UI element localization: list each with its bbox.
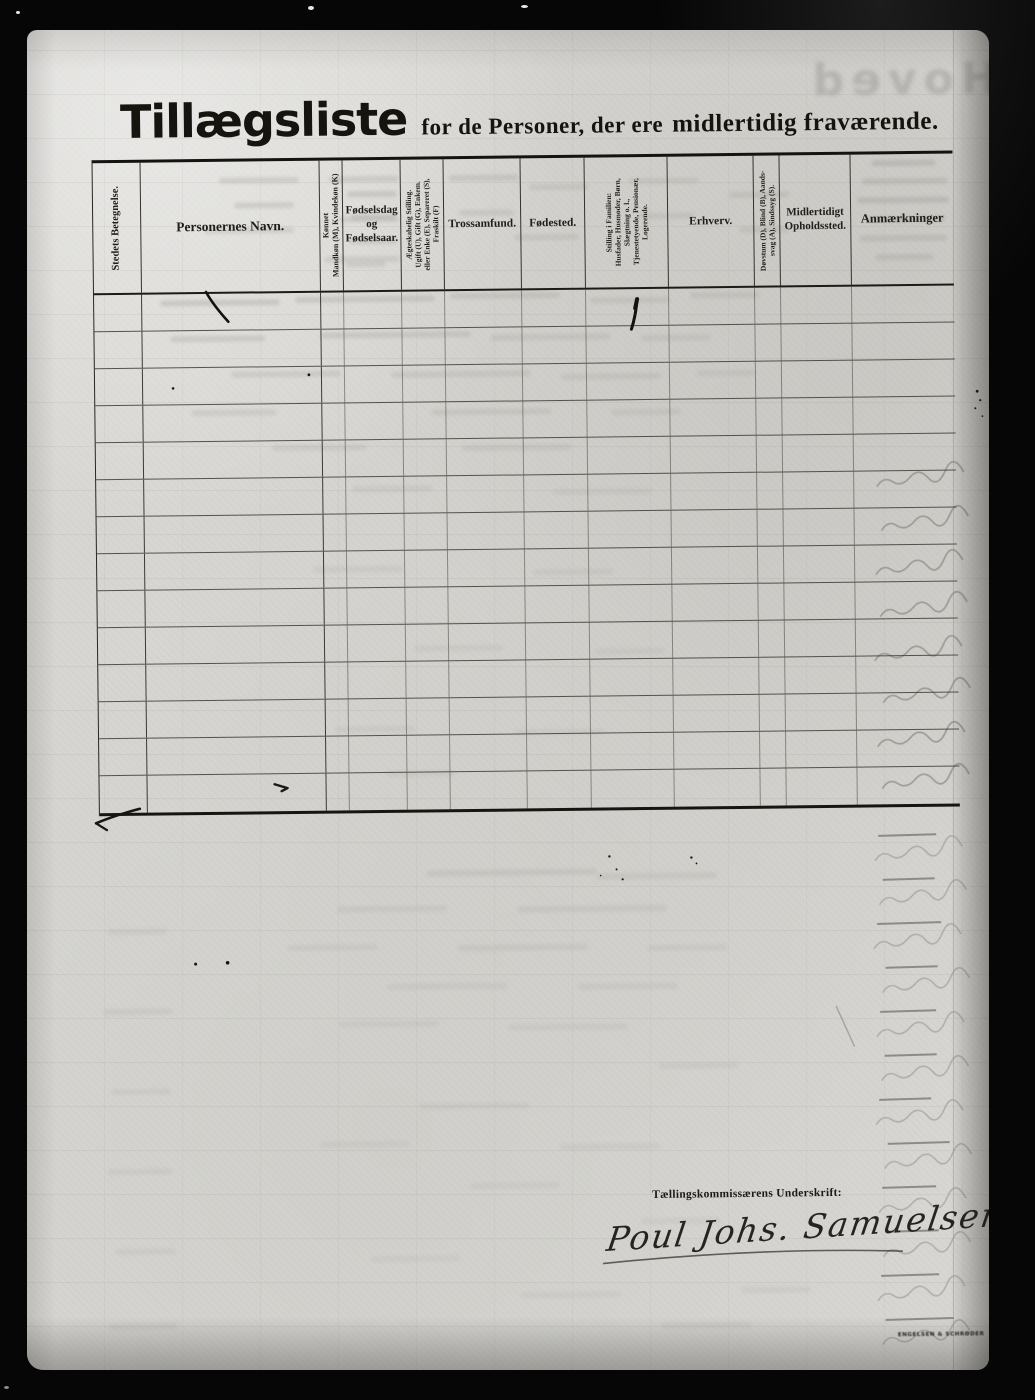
cell-fodsel (347, 588, 405, 625)
cell-sted (99, 739, 147, 776)
cell-ophold (786, 694, 857, 731)
column-header-erhverv: Erhverv. (667, 156, 754, 287)
cell-fodested (527, 771, 591, 809)
column-header-sted: Stedets Betegnelse. (93, 163, 142, 294)
cell-ophold (782, 361, 853, 398)
cell-trossamfund (447, 438, 524, 475)
column-label-dovstum: Døvstum (D), Blind (B), Aands- svag (A),… (757, 170, 776, 271)
cell-anmaerkninger (856, 655, 958, 692)
cell-fodsel (349, 699, 407, 736)
column-label-erhverv: Erhverv. (689, 214, 732, 229)
cell-sted (97, 554, 145, 591)
cell-aegteskab (403, 365, 446, 401)
cell-aegteskab (407, 772, 450, 809)
column-header-navn: Personernes Navn. (141, 161, 321, 293)
cell-kjonnet (323, 440, 346, 476)
cell-stilling (586, 289, 669, 326)
cell-kjonnet (322, 403, 345, 439)
column-label-stilling: Stilling i Familien: Husfader, Husmoder,… (603, 178, 649, 267)
cell-fodsel (344, 329, 402, 366)
cell-aegteskab (402, 291, 445, 327)
cell-ophold (783, 472, 854, 509)
cell-sted (95, 406, 143, 443)
cell-dovstum (755, 324, 781, 360)
dust-speck (16, 11, 20, 14)
cell-fodested (524, 475, 588, 512)
cell-dovstum (759, 657, 785, 693)
cell-stilling (586, 326, 669, 363)
cell-kjonnet (321, 292, 344, 328)
dust-speck (308, 6, 314, 10)
cell-anmaerkninger (852, 322, 954, 359)
cell-aegteskab (405, 513, 448, 549)
cell-navn (147, 774, 326, 813)
cell-dovstum (757, 435, 783, 471)
column-header-stilling: Stilling i Familien: Husfader, Husmoder,… (584, 157, 668, 288)
cell-stilling (591, 733, 674, 770)
cell-ophold (785, 620, 856, 657)
signature-handwriting: Poul Johs. Samuelsen (604, 1194, 989, 1259)
cell-anmaerkninger (853, 396, 955, 433)
cell-aegteskab (402, 328, 445, 364)
table-body (94, 286, 960, 814)
cell-ophold (781, 324, 852, 361)
signature-label: Tællingskommissærens Underskrift: (652, 1187, 842, 1201)
cell-aegteskab (406, 624, 449, 660)
cell-aegteskab (405, 587, 448, 623)
title-subtitle-bold: midlertidig fraværende. (672, 108, 939, 139)
cell-erhverv (671, 510, 757, 547)
cell-ophold (782, 398, 853, 435)
cell-erhverv (673, 658, 759, 695)
cell-sted (99, 702, 147, 739)
page-content: Hoved Tillægsliste for de Personer, der … (27, 30, 989, 1370)
cell-navn (147, 737, 326, 775)
cell-fodsel (348, 662, 406, 699)
cell-fodested (523, 364, 587, 401)
cell-dovstum (757, 472, 783, 508)
paper-sheet: Hoved Tillægsliste for de Personer, der … (27, 30, 989, 1370)
cell-navn (145, 552, 324, 590)
cell-anmaerkninger (854, 470, 956, 507)
faint-pencil-line (836, 1006, 854, 1047)
cell-anmaerkninger (852, 286, 954, 323)
cell-dovstum (756, 398, 782, 434)
cell-erhverv (671, 436, 757, 473)
cell-navn (144, 478, 323, 516)
cell-anmaerkninger (857, 692, 959, 729)
table-header-row: Stedets Betegnelse.Personernes Navn.Kønn… (93, 154, 954, 296)
cell-sted (94, 295, 142, 332)
column-label-aegteskab: Ægteskabelig Stilling. Ugift (U), Gift (… (404, 178, 441, 270)
column-header-fodested: Fødested. (520, 158, 585, 289)
cell-sted (98, 628, 146, 665)
cell-trossamfund (449, 660, 526, 697)
cell-stilling (587, 363, 670, 400)
cell-dovstum (758, 546, 784, 582)
cell-trossamfund (446, 364, 523, 401)
printer-mark: ENGELSEN & SCHRØDER (898, 1331, 985, 1338)
cell-anmaerkninger (855, 581, 957, 618)
cell-erhverv (670, 362, 756, 399)
column-label-ophold: Midlertidigt Opholdssted. (784, 206, 846, 234)
cell-dovstum (759, 620, 785, 656)
cell-stilling (589, 585, 672, 622)
cell-anmaerkninger (857, 766, 959, 804)
cell-anmaerkninger (855, 544, 957, 581)
cell-kjonnet (324, 514, 347, 550)
cell-dovstum (756, 361, 782, 397)
cell-navn (146, 663, 325, 701)
column-label-navn: Personernes Navn. (176, 218, 284, 236)
cell-sted (99, 776, 147, 814)
cell-stilling (591, 696, 674, 733)
cell-dovstum (758, 583, 784, 619)
cell-kjonnet (326, 736, 349, 772)
cell-fodested (524, 438, 588, 475)
cell-stilling (590, 622, 673, 659)
cell-sted (94, 332, 142, 369)
cell-fodsel (345, 366, 403, 403)
cell-trossamfund (448, 512, 525, 549)
cell-erhverv (674, 732, 760, 769)
cell-aegteskab (407, 735, 450, 771)
column-header-aegteskab: Ægteskabelig Stilling. Ugift (U), Gift (… (400, 159, 444, 289)
cell-sted (96, 443, 144, 480)
cell-kjonnet (326, 773, 349, 810)
cell-dovstum (757, 509, 783, 545)
cell-trossamfund (450, 734, 527, 771)
cell-dovstum (760, 694, 786, 730)
cell-stilling (588, 474, 671, 511)
cell-stilling (587, 400, 670, 437)
cell-anmaerkninger (856, 618, 958, 655)
cell-trossamfund (445, 290, 522, 327)
column-label-fodsel: Fødselsdag og Fødselsaar. (345, 204, 398, 246)
cell-navn (143, 367, 322, 405)
cell-navn (146, 626, 325, 664)
column-header-kjonnet: Kønnet Mandkøn (M), Kvindekøn (K) (320, 160, 344, 290)
cell-ophold (786, 731, 857, 768)
cell-sted (98, 665, 146, 702)
dust-speck (4, 1386, 9, 1389)
cell-aegteskab (406, 661, 449, 697)
cell-fodested (522, 327, 586, 364)
cell-stilling (589, 548, 672, 585)
cell-stilling (588, 437, 671, 474)
cell-stilling (590, 659, 673, 696)
cell-ophold (783, 509, 854, 546)
cell-navn (142, 293, 321, 331)
column-label-fodested: Fødested. (529, 216, 576, 231)
cell-anmaerkninger (854, 507, 956, 544)
cell-kjonnet (324, 551, 347, 587)
cell-fodsel (347, 514, 405, 551)
cell-fodsel (346, 477, 404, 514)
cell-aegteskab (403, 402, 446, 438)
cell-navn (144, 441, 323, 479)
title-subtitle: for de Personer, der ere (421, 112, 663, 141)
cell-kjonnet (324, 588, 347, 624)
cell-aegteskab (404, 439, 447, 475)
cell-navn (143, 404, 322, 442)
cell-trossamfund (446, 401, 523, 438)
column-header-trossamfund: Trossamfund. (443, 158, 521, 289)
cell-trossamfund (445, 327, 522, 364)
page-title: Tillægsliste for de Personer, der ere mi… (120, 86, 939, 149)
dust-speck (521, 5, 528, 8)
cell-trossamfund (447, 475, 524, 512)
cell-erhverv (673, 621, 759, 658)
cell-fodested (525, 549, 589, 586)
cell-anmaerkninger (857, 729, 959, 766)
cell-erhverv (672, 584, 758, 621)
cell-sted (97, 517, 145, 554)
cell-ophold (784, 546, 855, 583)
cell-ophold (784, 583, 855, 620)
cell-aegteskab (405, 550, 448, 586)
cell-navn (147, 700, 326, 738)
cell-aegteskab (407, 698, 450, 734)
cell-fodsel (347, 551, 405, 588)
cell-stilling (591, 770, 674, 808)
cell-erhverv (674, 769, 760, 807)
cell-navn (145, 515, 324, 553)
cell-kjonnet (325, 625, 348, 661)
cell-sted (97, 591, 145, 628)
column-header-fodsel: Fødselsdag og Fødselsaar. (342, 160, 401, 291)
cell-fodsel (344, 292, 402, 329)
cell-fodsel (346, 440, 404, 477)
cell-fodsel (345, 403, 403, 440)
cell-fodested (527, 734, 591, 771)
cell-fodsel (348, 625, 406, 662)
cell-ophold (786, 768, 857, 806)
cell-anmaerkninger (854, 433, 956, 470)
cell-sted (96, 480, 144, 517)
cell-stilling (589, 511, 672, 548)
cell-kjonnet (323, 477, 346, 513)
cell-erhverv (669, 288, 755, 325)
cell-dovstum (760, 731, 786, 767)
cell-erhverv (670, 399, 756, 436)
cell-fodested (523, 401, 587, 438)
cell-fodested (522, 290, 586, 327)
cell-trossamfund (448, 549, 525, 586)
cell-erhverv (669, 325, 755, 362)
cell-kjonnet (321, 329, 344, 365)
title-main: Tillægsliste (120, 92, 408, 149)
cell-ophold (781, 287, 852, 324)
cell-trossamfund (448, 586, 525, 623)
cell-dovstum (755, 287, 781, 323)
cell-fodsel (349, 736, 407, 773)
census-table: Stedets Betegnelse.Personernes Navn.Kønn… (91, 151, 959, 817)
cell-erhverv (674, 695, 760, 732)
column-label-kjonnet: Kønnet Mandkøn (M), Kvindekøn (K) (321, 174, 341, 278)
cell-erhverv (671, 473, 757, 510)
cell-fodested (526, 623, 590, 660)
cell-erhverv (672, 547, 758, 584)
cell-ophold (785, 657, 856, 694)
column-label-sted: Stedets Betegnelse. (110, 186, 124, 271)
column-header-anmaerkninger: Anmærkninger (850, 154, 953, 285)
cell-fodested (527, 697, 591, 734)
cell-fodsel (349, 773, 407, 811)
cell-dovstum (760, 768, 786, 805)
cell-kjonnet (325, 662, 348, 698)
cell-ophold (783, 435, 854, 472)
cell-trossamfund (450, 697, 527, 734)
cell-kjonnet (326, 699, 349, 735)
cell-kjonnet (322, 366, 345, 402)
column-label-anmaerkninger: Anmærkninger (861, 211, 944, 228)
cell-trossamfund (449, 623, 526, 660)
cell-anmaerkninger (853, 359, 955, 396)
cell-sted (95, 369, 143, 406)
column-header-dovstum: Døvstum (D), Blind (B), Aands- svag (A),… (753, 155, 780, 285)
cell-navn (145, 589, 324, 627)
cell-aegteskab (404, 476, 447, 512)
cell-fodested (525, 512, 589, 549)
cell-fodested (526, 660, 590, 697)
cell-trossamfund (450, 771, 527, 809)
column-label-trossamfund: Trossamfund. (448, 216, 516, 231)
cell-navn (142, 330, 321, 368)
scanned-page: Hoved Tillægsliste for de Personer, der … (0, 0, 1035, 1400)
column-header-ophold: Midlertidigt Opholdssted. (779, 155, 851, 286)
cell-fodested (525, 586, 589, 623)
